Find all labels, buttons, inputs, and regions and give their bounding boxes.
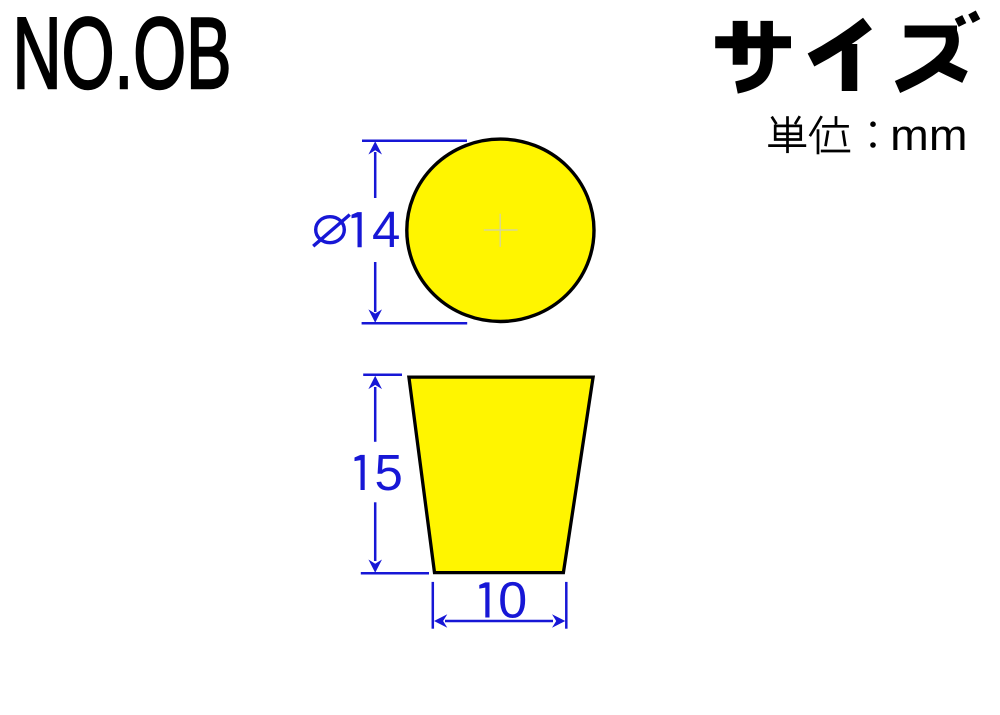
svg-text:4: 4 bbox=[372, 201, 400, 258]
svg-text:NO.OB: NO.OB bbox=[13, 0, 232, 110]
svg-text:0: 0 bbox=[498, 572, 527, 629]
svg-text:5: 5 bbox=[375, 444, 403, 501]
svg-text:mm: mm bbox=[890, 111, 967, 160]
